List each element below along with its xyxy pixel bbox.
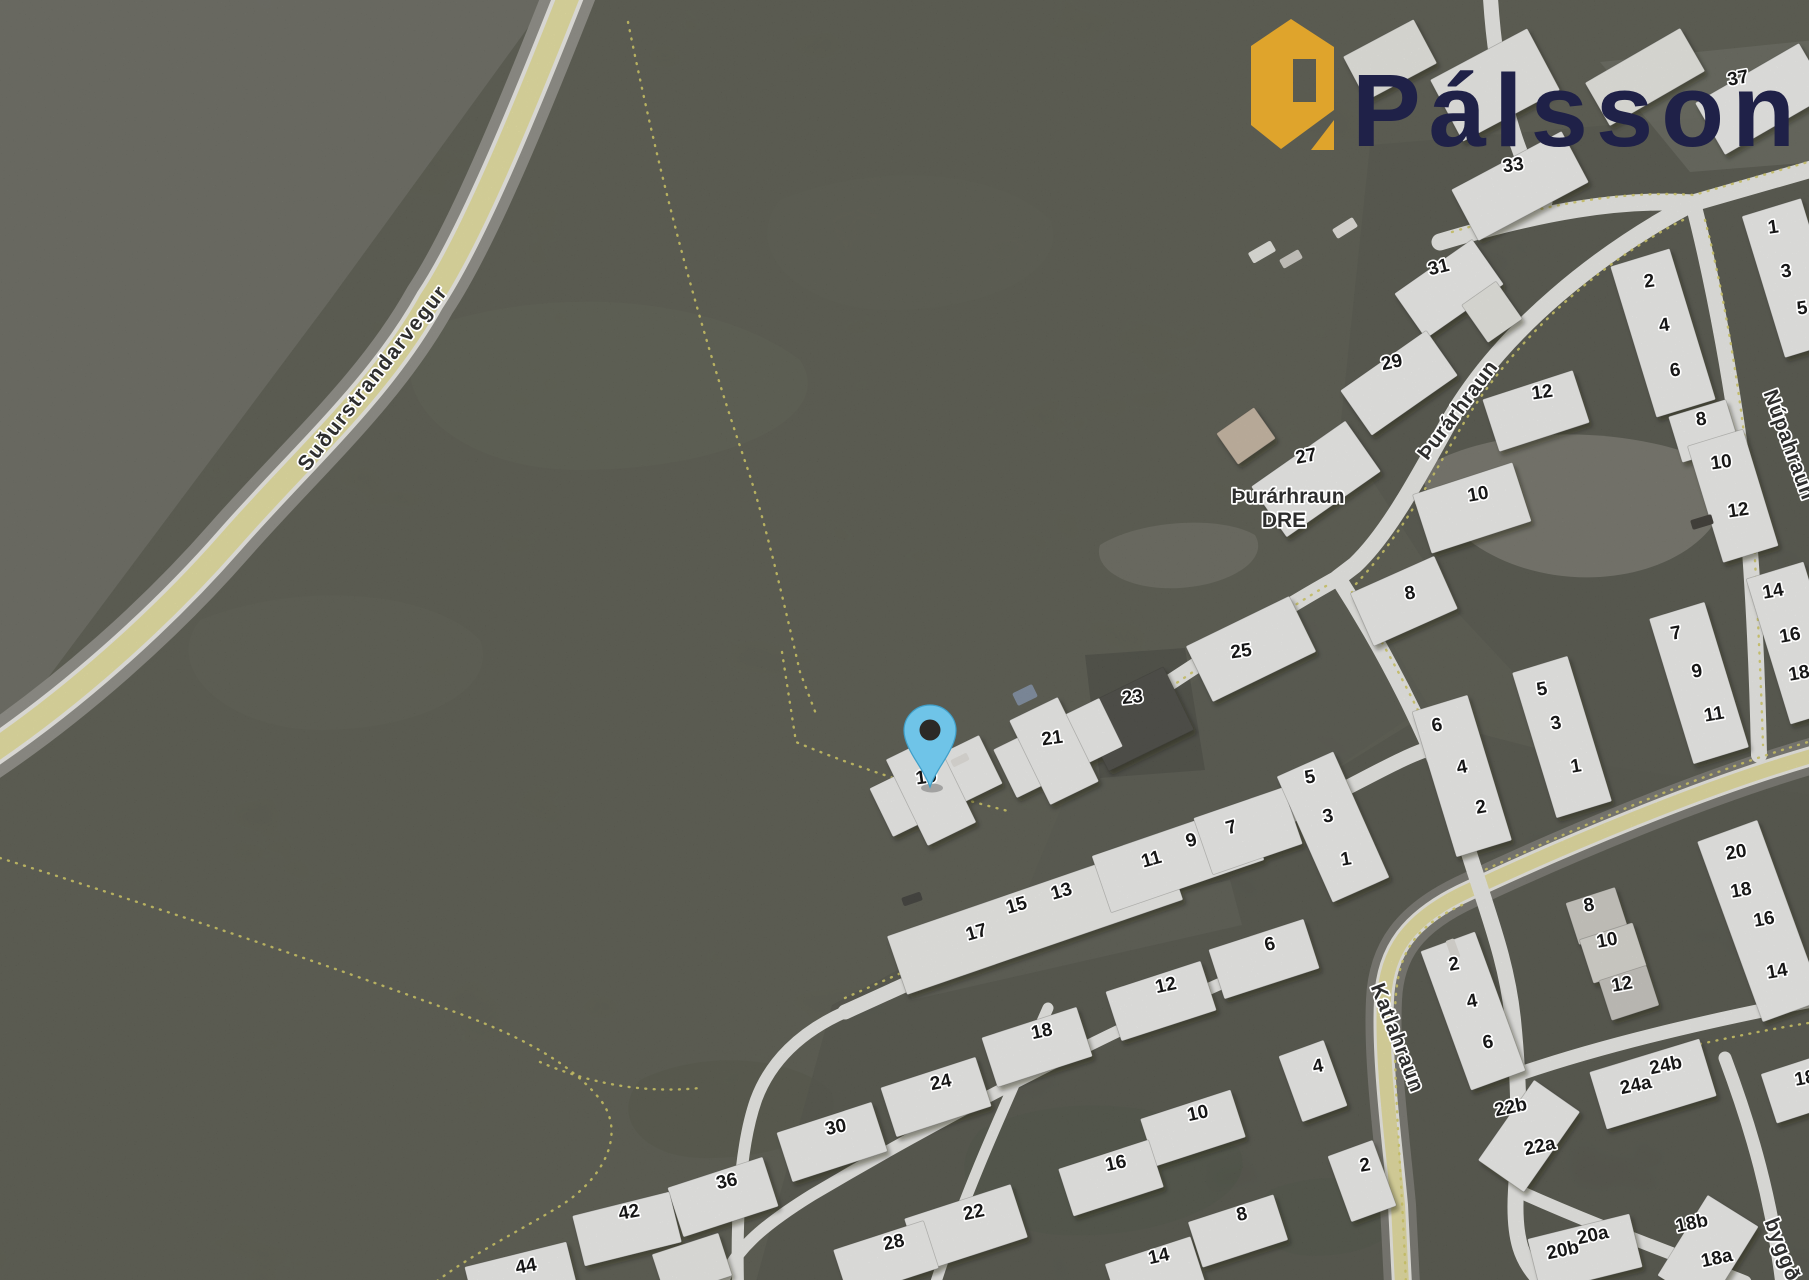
- house-number-label: 16: [1752, 907, 1776, 931]
- house-number-label: 44: [514, 1254, 539, 1278]
- house-number-label: 20: [1724, 840, 1748, 864]
- house-number-label: 29: [1379, 350, 1404, 375]
- satellite-map-view: 3733312927252321191715131197531246128135…: [0, 0, 1809, 1280]
- house-number-label: 10: [1466, 482, 1490, 506]
- satellite-map[interactable]: 3733312927252321191715131197531246128135…: [0, 0, 1809, 1280]
- house-number-label: 10: [1595, 928, 1619, 952]
- area-label-line1: Þurárhraun: [1231, 485, 1344, 508]
- house-number-label: 18: [1793, 1066, 1809, 1090]
- photo-grain-light: [0, 0, 1809, 1280]
- house-number-label: 28: [881, 1230, 906, 1255]
- house-number-label: 18: [1787, 661, 1809, 685]
- house-number-label: 23: [1121, 686, 1144, 709]
- pin-hole: [920, 720, 941, 741]
- brand-name: Pálsson: [1352, 53, 1803, 168]
- house-number-label: 16: [1103, 1151, 1128, 1176]
- house-number-label: 36: [714, 1169, 739, 1194]
- house-number-label: 27: [1294, 444, 1318, 468]
- house-number-label: 12: [1153, 973, 1178, 998]
- house-number-label: 14: [1761, 579, 1786, 603]
- area-label-line2: DRE: [1262, 509, 1306, 532]
- house-number-label: 14: [1765, 959, 1790, 983]
- house-number-label: 30: [823, 1115, 848, 1140]
- house-number-label: 12: [1726, 499, 1750, 523]
- house-number-label: 10: [1709, 451, 1733, 475]
- house-number-label: 18: [1729, 878, 1753, 902]
- house-number-label: 25: [1229, 640, 1253, 664]
- house-number-label: 21: [1040, 727, 1064, 751]
- house-number-label: 22: [961, 1200, 986, 1225]
- pin-shadow: [921, 784, 943, 793]
- house-number-label: 18: [1029, 1019, 1054, 1044]
- house-number-label: 42: [617, 1200, 641, 1224]
- house-number-label: 10: [1185, 1101, 1210, 1126]
- house-number-label: 11: [1702, 702, 1726, 726]
- house-number-label: 12: [1610, 972, 1634, 996]
- house-number-label: 16: [1778, 623, 1802, 647]
- house-number-label: 12: [1530, 381, 1554, 405]
